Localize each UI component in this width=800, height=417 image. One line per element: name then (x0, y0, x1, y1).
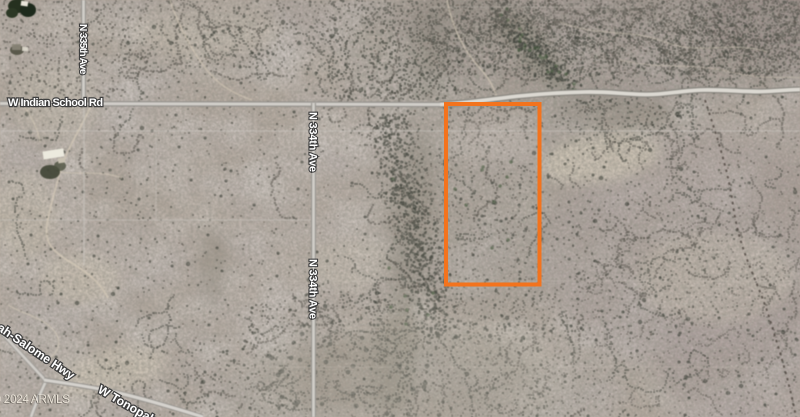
svg-text:N 334th Ave: N 334th Ave (307, 259, 319, 319)
svg-text:N 334th Ave: N 334th Ave (307, 112, 319, 172)
svg-text:© 2024 ARMLS: © 2024 ARMLS (0, 392, 70, 406)
svg-text:N 335th Ave: N 335th Ave (77, 24, 88, 75)
svg-text:W Indian School Rd: W Indian School Rd (8, 97, 103, 109)
